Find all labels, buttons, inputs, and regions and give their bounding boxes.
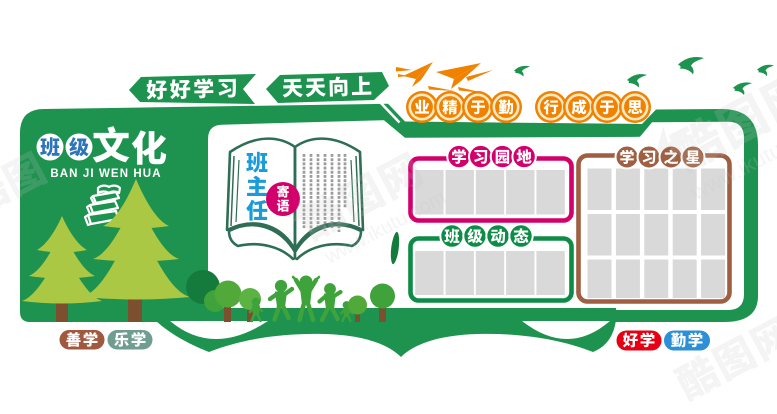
svg-text:BAN JI WEN HUA: BAN JI WEN HUA — [50, 168, 161, 180]
